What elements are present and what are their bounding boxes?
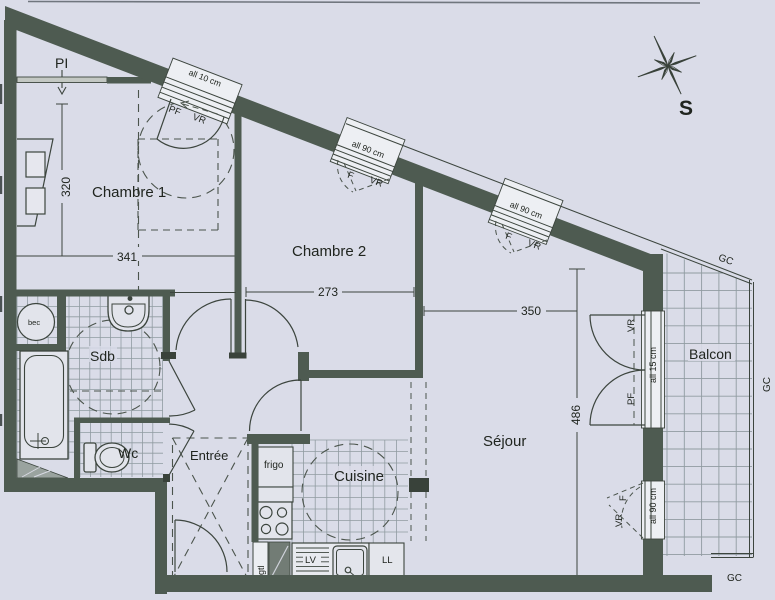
svg-text:LL: LL <box>382 555 393 566</box>
svg-text:320: 320 <box>59 177 73 197</box>
svg-text:GC: GC <box>727 573 742 584</box>
svg-text:GC: GC <box>762 377 773 392</box>
svg-text:all 15 cm: all 15 cm <box>648 347 658 383</box>
svg-text:Chambre 1: Chambre 1 <box>92 184 166 201</box>
svg-text:VR: VR <box>626 319 637 332</box>
svg-text:frigo: frigo <box>264 460 284 471</box>
svg-text:Cuisine: Cuisine <box>334 468 384 485</box>
svg-text:all 90 cm: all 90 cm <box>648 488 658 524</box>
svg-text:486: 486 <box>569 405 583 425</box>
svg-text:PI: PI <box>55 55 68 71</box>
svg-text:F: F <box>618 495 629 501</box>
svg-text:Sdb: Sdb <box>90 348 115 364</box>
svg-text:bec: bec <box>28 318 40 327</box>
svg-text:S: S <box>679 97 693 120</box>
svg-text:PF: PF <box>626 393 637 405</box>
svg-text:Balcon: Balcon <box>689 346 732 362</box>
svg-text:gtl: gtl <box>256 565 266 575</box>
svg-text:Entrée: Entrée <box>190 448 228 463</box>
svg-text:Chambre 2: Chambre 2 <box>292 243 366 260</box>
svg-text:341: 341 <box>117 250 137 264</box>
svg-text:LV: LV <box>305 555 317 566</box>
svg-text:Wc: Wc <box>118 445 138 461</box>
svg-text:VR: VR <box>614 514 625 527</box>
svg-text:Séjour: Séjour <box>483 433 526 450</box>
svg-text:273: 273 <box>318 285 338 299</box>
svg-text:350: 350 <box>521 304 541 318</box>
